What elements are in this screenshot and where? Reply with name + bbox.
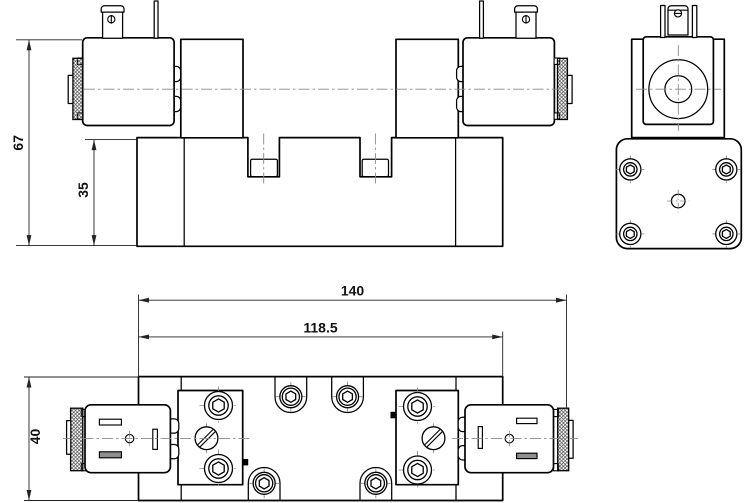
terminal-pin [661,6,665,38]
dimension-118-5: 118.5 [139,319,503,339]
side-view [616,6,741,249]
dim-label-body-height: 35 [75,182,91,198]
left-din-connector [101,6,124,39]
arrowhead-icon [492,335,503,340]
connector-cap [515,6,538,12]
knob-cap-plan [67,421,71,455]
arrowhead-icon [27,235,32,246]
left-solenoid-bracket [181,39,243,138]
left-solenoid-coil [83,38,174,126]
technical-drawing: 67 35 140 118.5 40 [0,0,755,503]
front-view [68,1,572,246]
arrowhead-icon [27,40,32,51]
knob-cap-plan [569,420,573,458]
terminal-slot-vertical [153,429,158,449]
arrowhead-icon [27,377,32,388]
terminal-slot [99,419,121,425]
manual-override-knob-plan [71,408,83,471]
right-solenoid-bracket [396,39,458,138]
terminal-pin [480,1,484,38]
dimension-67: 67 [10,40,32,246]
manual-override-knob-plan [558,408,569,471]
terminal-slot-filled [517,453,537,458]
arrowhead-icon [139,335,150,340]
left-manual-override-knob [73,58,83,119]
dimension-140: 140 [139,283,567,303]
plan-view [63,377,578,501]
orientation-marker [243,459,248,465]
left-knob-cap [68,75,73,103]
dimension-35: 35 [75,140,97,246]
drawing-canvas: 67 35 140 118.5 40 [0,0,755,503]
terminal-pin [154,1,158,38]
dimension-40: 40 [27,377,44,501]
dim-label-total-height: 67 [10,135,26,151]
dim-label-body-length: 118.5 [303,319,337,335]
arrowhead-icon [92,140,97,151]
terminal-pin [692,6,696,38]
right-solenoid-coil [463,38,554,126]
connector-cap [101,6,124,12]
right-din-connector [515,6,538,39]
terminal-slot [517,418,537,423]
arrowhead-icon [556,298,567,303]
orientation-marker [391,412,397,419]
arrowhead-icon [92,235,97,246]
arrowhead-icon [27,490,32,501]
valve-body-outline [137,138,503,247]
terminal-slot-filled [99,452,121,458]
arrowhead-icon [139,298,150,303]
dim-label-body-width: 40 [27,429,43,445]
terminal-slot-vertical [478,427,482,449]
dim-label-overall-length: 140 [341,283,365,299]
